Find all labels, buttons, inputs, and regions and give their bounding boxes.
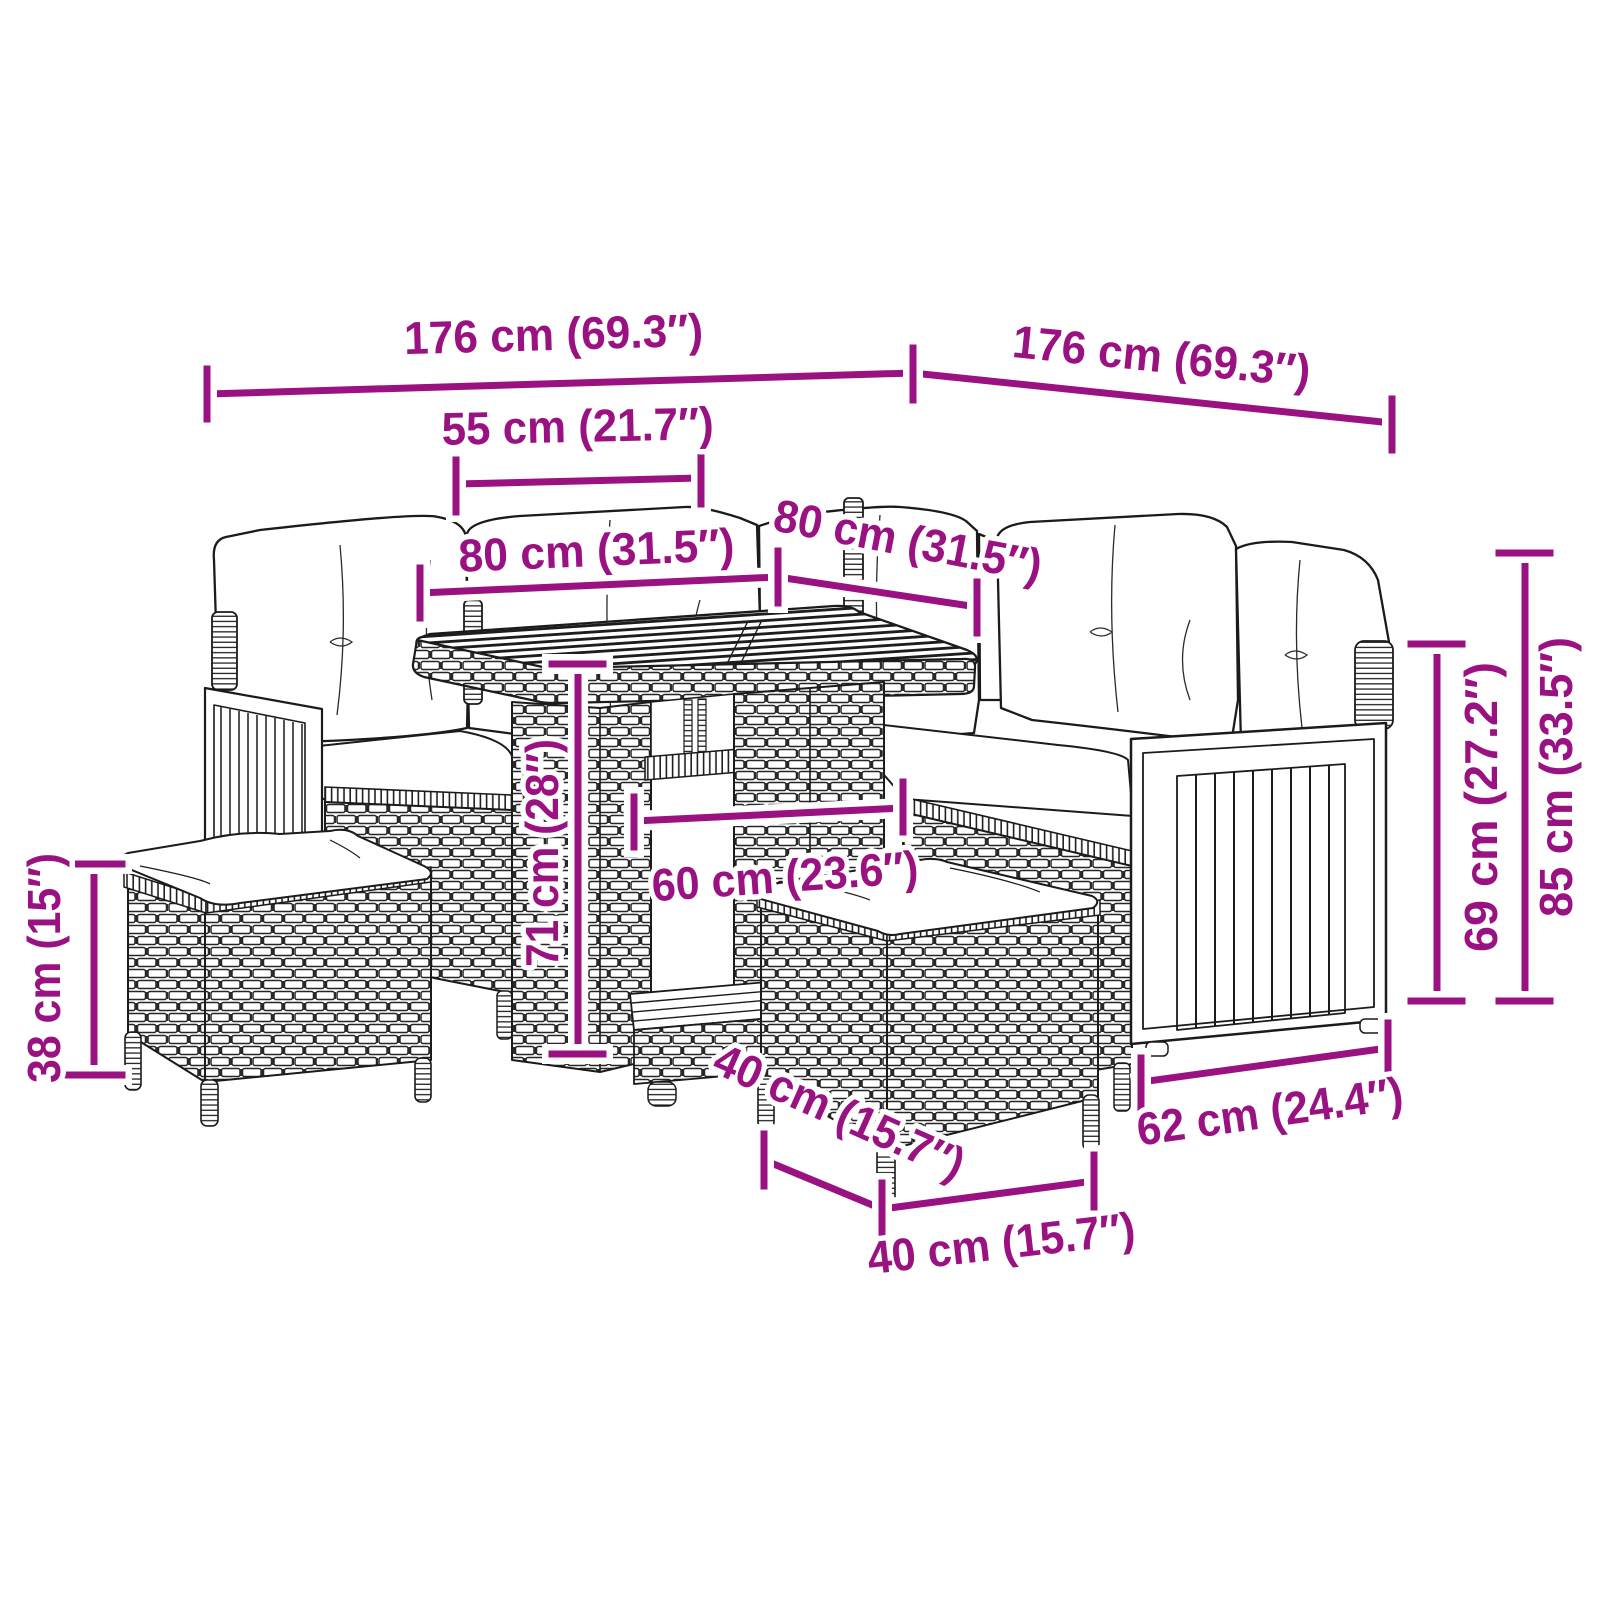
svg-text:71 cm (28″): 71 cm (28″) [516,739,568,967]
svg-text:85 cm (33.5″): 85 cm (33.5″) [1530,637,1582,917]
svg-text:69 cm (27.2″): 69 cm (27.2″) [1455,662,1507,952]
svg-text:176 cm (69.3″): 176 cm (69.3″) [403,304,703,364]
svg-text:38 cm (15″): 38 cm (15″) [18,853,70,1083]
svg-text:55 cm (21.7″): 55 cm (21.7″) [441,397,714,455]
